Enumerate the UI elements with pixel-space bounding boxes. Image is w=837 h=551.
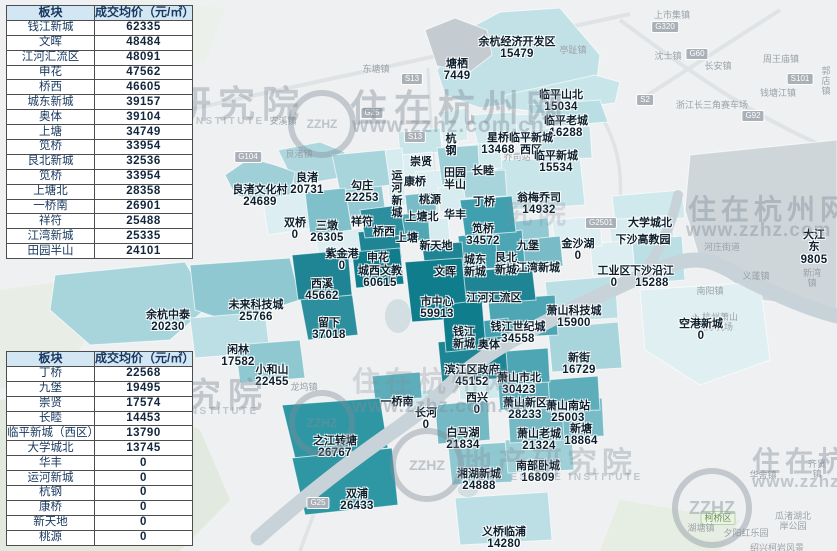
price-cell: 13745 [95, 441, 193, 456]
plate-cell: 长睦 [7, 411, 95, 426]
plate-cell: 运河新城 [7, 471, 95, 486]
region-linpingxincheng [530, 126, 592, 160]
table-row: 杭钢 0 [7, 486, 193, 501]
plate-cell: 新天地 [7, 515, 95, 530]
table-row: 奥体 39104 [7, 110, 193, 125]
price-cell: 0 [95, 456, 193, 471]
price-cell: 34749 [95, 125, 193, 140]
price-cell: 26901 [95, 199, 193, 214]
price-cell: 39157 [95, 95, 193, 110]
column-header-plate: 板块 [7, 352, 95, 367]
table-row: 一桥南 26901 [7, 199, 193, 214]
region-yiqiaonan [372, 372, 422, 400]
price-cell: 39104 [95, 110, 193, 125]
region-dingqiao [462, 170, 507, 198]
plate-cell: 桥西 [7, 80, 95, 95]
price-cell: 46605 [95, 80, 193, 95]
region-xingqiao [470, 112, 518, 145]
region-chengxiwenjiao [352, 248, 404, 288]
table-row: 大学城北 13745 [7, 441, 193, 456]
region-jianghehuiliuqu [458, 266, 536, 305]
price-cell: 17574 [95, 396, 193, 411]
plate-cell: 江湾新城 [7, 229, 95, 244]
plate-cell: 大学城北 [7, 441, 95, 456]
region-jiangwanxincheng [520, 236, 563, 268]
plate-cell: 奥体 [7, 110, 95, 125]
price-cell: 0 [95, 515, 193, 530]
table-row: 笕桥 33954 [7, 169, 193, 184]
price-cell: 0 [95, 500, 193, 515]
plate-cell: 临平新城（西区） [7, 426, 95, 441]
plate-cell: 钱江新城 [7, 20, 95, 35]
plate-cell: 城东新城 [7, 95, 95, 110]
price-cell: 19495 [95, 381, 193, 396]
price-cell: 28358 [95, 184, 193, 199]
plate-cell: 杭钢 [7, 486, 95, 501]
table-row: 江河汇流区 48091 [7, 50, 193, 65]
region-chongxian [398, 128, 442, 155]
table-row: 文晖 48484 [7, 35, 193, 50]
table-row: 运河新城 0 [7, 471, 193, 486]
plate-cell: 九堡 [7, 381, 95, 396]
region-hanggang [440, 108, 468, 143]
plate-cell: 笕桥 [7, 169, 95, 184]
price-cell: 0 [95, 530, 193, 545]
region-xixi [292, 250, 352, 300]
table-row: 艮北新城 32536 [7, 154, 193, 169]
plate-cell: 桃源 [7, 530, 95, 545]
table-row: 临平新城（西区） 13790 [7, 426, 193, 441]
plate-cell: 祥符 [7, 214, 95, 229]
table-row: 田园半山 24101 [7, 244, 193, 259]
plate-cell: 上塘北 [7, 184, 95, 199]
price-cell: 13790 [95, 426, 193, 441]
plate-cell: 文晖 [7, 35, 95, 50]
plate-cell: 丁桥 [7, 366, 95, 381]
table-row: 城东新城 39157 [7, 95, 193, 110]
table-row: 笕桥 33954 [7, 140, 193, 155]
column-header-price: 成交均价（元/㎡） [95, 6, 193, 21]
region-xiaoheshan [235, 340, 305, 383]
west-lake [385, 299, 411, 333]
plate-cell: 田园半山 [7, 244, 95, 259]
region-xiaoshannanzhan [545, 376, 600, 412]
price-cell: 22568 [95, 366, 193, 381]
table-row: 九堡 19495 [7, 381, 193, 396]
table-row: 钱江新城 62335 [7, 20, 193, 35]
table-row: 长睦 14453 [7, 411, 193, 426]
price-table-bottom: 板块 成交均价（元/㎡） 丁桥 22568 九堡 19495 崇贤 17574 … [6, 351, 193, 546]
table-row: 新天地 0 [7, 515, 193, 530]
price-cell: 0 [95, 486, 193, 501]
region-yiqiaolinpu [455, 492, 552, 545]
plate-cell: 康桥 [7, 500, 95, 515]
table-row: 桃源 0 [7, 530, 193, 545]
table-header-row: 板块 成交均价（元/㎡） [7, 352, 193, 367]
plate-cell: 申花 [7, 65, 95, 80]
price-cell: 25335 [95, 229, 193, 244]
plate-cell: 崇贤 [7, 396, 95, 411]
region-xinjie [548, 322, 622, 372]
price-cell: 33954 [95, 169, 193, 184]
table-row: 华丰 0 [7, 456, 193, 471]
region-qiaoxi [360, 205, 405, 238]
price-cell: 62335 [95, 20, 193, 35]
column-header-price: 成交均价（元/㎡） [95, 352, 193, 367]
plate-cell: 江河汇流区 [7, 50, 95, 65]
plate-cell: 一桥南 [7, 199, 95, 214]
price-cell: 48091 [95, 50, 193, 65]
region-qianjiangxincheng [442, 300, 486, 352]
table-row: 江湾新城 25335 [7, 229, 193, 244]
table-row: 崇贤 17574 [7, 396, 193, 411]
table-row: 申花 47562 [7, 65, 193, 80]
price-cell: 14453 [95, 411, 193, 426]
table-row: 祥符 25488 [7, 214, 193, 229]
table-row: 康桥 0 [7, 500, 193, 515]
price-table-top: 板块 成交均价（元/㎡） 钱江新城 62335 文晖 48484 江河汇流区 4… [6, 5, 193, 259]
price-cell: 24101 [95, 244, 193, 259]
region-xianghuxincheng [448, 442, 512, 485]
table-row: 桥西 46605 [7, 80, 193, 95]
plate-cell: 艮北新城 [7, 154, 95, 169]
price-cell: 33954 [95, 140, 193, 155]
table-row: 上塘北 28358 [7, 184, 193, 199]
price-cell: 47562 [95, 65, 193, 80]
column-header-plate: 板块 [7, 6, 95, 21]
plate-cell: 笕桥 [7, 140, 95, 155]
table-row: 上塘 34749 [7, 125, 193, 140]
plate-cell: 华丰 [7, 456, 95, 471]
region-baimahu [435, 400, 490, 444]
price-cell: 32536 [95, 154, 193, 169]
xiang-lake [458, 483, 478, 497]
table-row: 丁桥 22568 [7, 366, 193, 381]
price-cell: 25488 [95, 214, 193, 229]
table-header-row: 板块 成交均价（元/㎡） [7, 6, 193, 21]
price-map-infographic: 上柏镇东塘镇安溪镇良渚镇亭趾镇乔司站上市集镇沈士镇长安镇周王庙镇郭店镇钱塘江镇浙… [0, 0, 837, 551]
region-jianqiao [460, 196, 516, 236]
plate-cell: 上塘 [7, 125, 95, 140]
price-cell: 48484 [95, 35, 193, 50]
price-cell: 0 [95, 471, 193, 486]
region-sandun [305, 188, 352, 235]
